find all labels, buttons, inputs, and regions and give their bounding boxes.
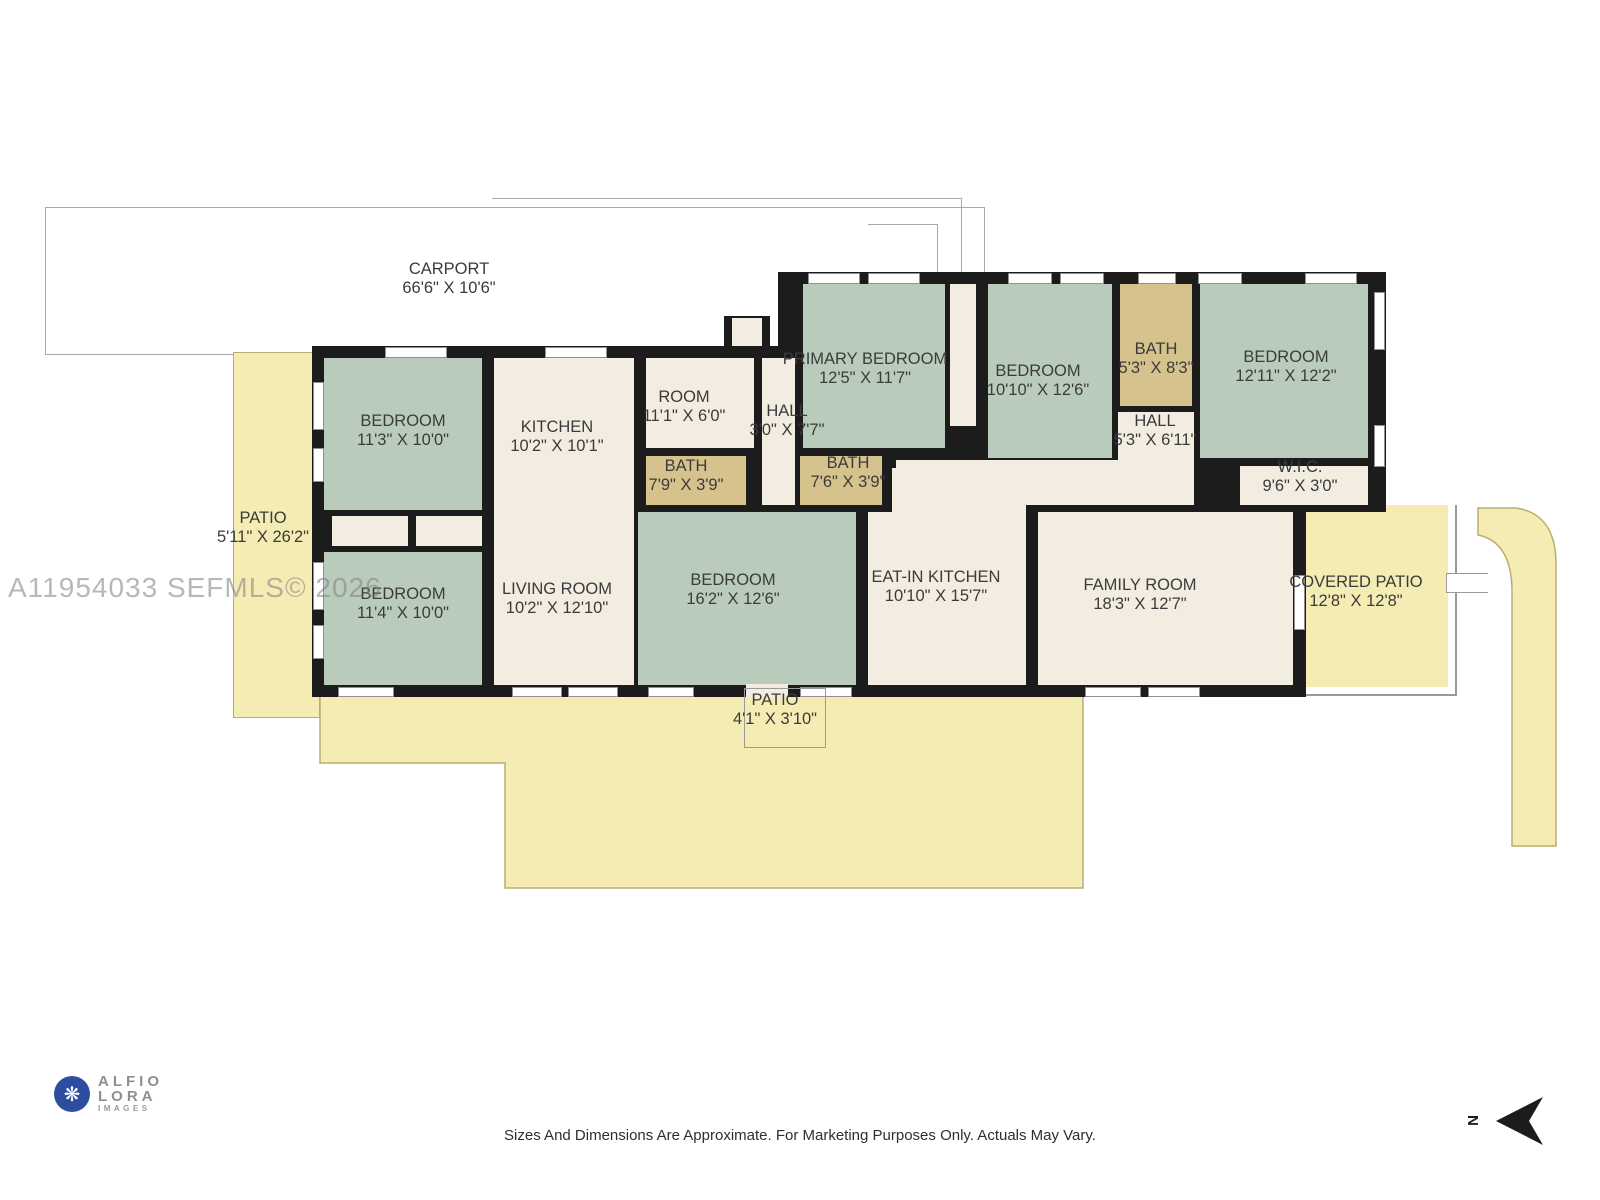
room-label-carport: CARPORT66'6" X 10'6" [402, 260, 495, 298]
room-label-kitchen: KITCHEN10'2" X 10'1" [510, 418, 603, 456]
room-label-bath-mid: BATH7'6" X 3'9" [811, 454, 886, 492]
room-label-bedroom-top-right: BEDROOM12'11" X 12'2" [1235, 348, 1336, 386]
room-area-closet-2 [416, 516, 482, 546]
window-marker [868, 273, 920, 284]
room-label-patio-left: PATIO5'11" X 26'2" [217, 509, 309, 547]
walkway-shape [1478, 508, 1556, 846]
window-marker [1198, 273, 1242, 284]
room-label-bath-right: BATH5'3" X 8'3" [1119, 340, 1194, 378]
logo-line2: LORA [98, 1089, 163, 1104]
room-area-kitchen-living [494, 358, 634, 685]
window-marker [313, 382, 324, 430]
photographer-logo: ❋ ALFIO LORA IMAGES [54, 1074, 163, 1114]
floor-plan-canvas: CARPORT66'6" X 10'6" PATIO5'11" X 26'2" … [0, 0, 1600, 1200]
room-area-primary-closet [950, 284, 976, 426]
window-marker [648, 687, 694, 697]
window-marker [1060, 273, 1104, 284]
north-arrow-icon [1496, 1097, 1543, 1145]
logo-line3: IMAGES [98, 1104, 163, 1114]
camera-shutter-icon: ❋ [54, 1076, 90, 1112]
window-marker [808, 273, 860, 284]
window-marker [1374, 425, 1385, 467]
room-label-family-room: FAMILY ROOM18'3" X 12'7" [1083, 576, 1196, 614]
room-label-hall-right: HALL5'3" X 6'11" [1114, 412, 1197, 450]
room-area-closet-1 [332, 516, 408, 546]
window-marker [1085, 687, 1141, 697]
room-label-eat-in-kitchen: EAT-IN KITCHEN10'10" X 15'7" [872, 568, 1001, 606]
disclaimer-text: Sizes And Dimensions Are Approximate. Fo… [504, 1127, 1096, 1144]
logo-text: ALFIO LORA IMAGES [98, 1074, 163, 1114]
room-label-primary-bedroom: PRIMARY BEDROOM12'5" X 11'7" [783, 350, 947, 388]
room-label-room: ROOM11'1" X 6'0" [643, 388, 726, 426]
room-label-wic: W.I.C.9'6" X 3'0" [1263, 458, 1338, 496]
window-marker [512, 687, 562, 697]
logo-line1: ALFIO [98, 1074, 163, 1089]
window-marker [1305, 273, 1357, 284]
window-marker [385, 347, 447, 358]
room-label-bath-left: BATH7'9" X 3'9" [649, 457, 724, 495]
entry-vestibule-floor [732, 318, 762, 346]
window-marker [568, 687, 618, 697]
room-label-patio-small: PATIO4'1" X 3'10" [733, 691, 817, 729]
covered-patio-bottom-trim [1306, 688, 1457, 696]
mls-watermark: A11954033 SEFMLS© 2026 [8, 572, 382, 604]
window-marker [338, 687, 394, 697]
room-label-bedroom-bottom-mid: BEDROOM16'2" X 12'6" [686, 571, 779, 609]
covered-patio-right-trim [1450, 505, 1457, 695]
window-marker [1008, 273, 1052, 284]
window-marker [1138, 273, 1176, 284]
room-label-hall-front: HALL3'0" X 7'7" [750, 402, 825, 440]
room-label-bedroom-top-left: BEDROOM11'3" X 10'0" [357, 412, 449, 450]
window-marker [1148, 687, 1200, 697]
window-marker [313, 448, 324, 482]
window-marker [1374, 292, 1385, 350]
room-label-covered-patio: COVERED PATIO12'8" X 12'8" [1289, 573, 1422, 611]
north-label: N [1465, 1115, 1482, 1126]
room-label-living-room: LIVING ROOM10'2" X 12'10" [502, 580, 612, 618]
room-label-bedroom-mid: BEDROOM10'10" X 12'6" [987, 362, 1089, 400]
covered-patio-notch [1446, 573, 1488, 593]
window-marker [313, 625, 324, 659]
bottom-patio-shape [320, 682, 1083, 888]
window-marker [545, 347, 607, 358]
